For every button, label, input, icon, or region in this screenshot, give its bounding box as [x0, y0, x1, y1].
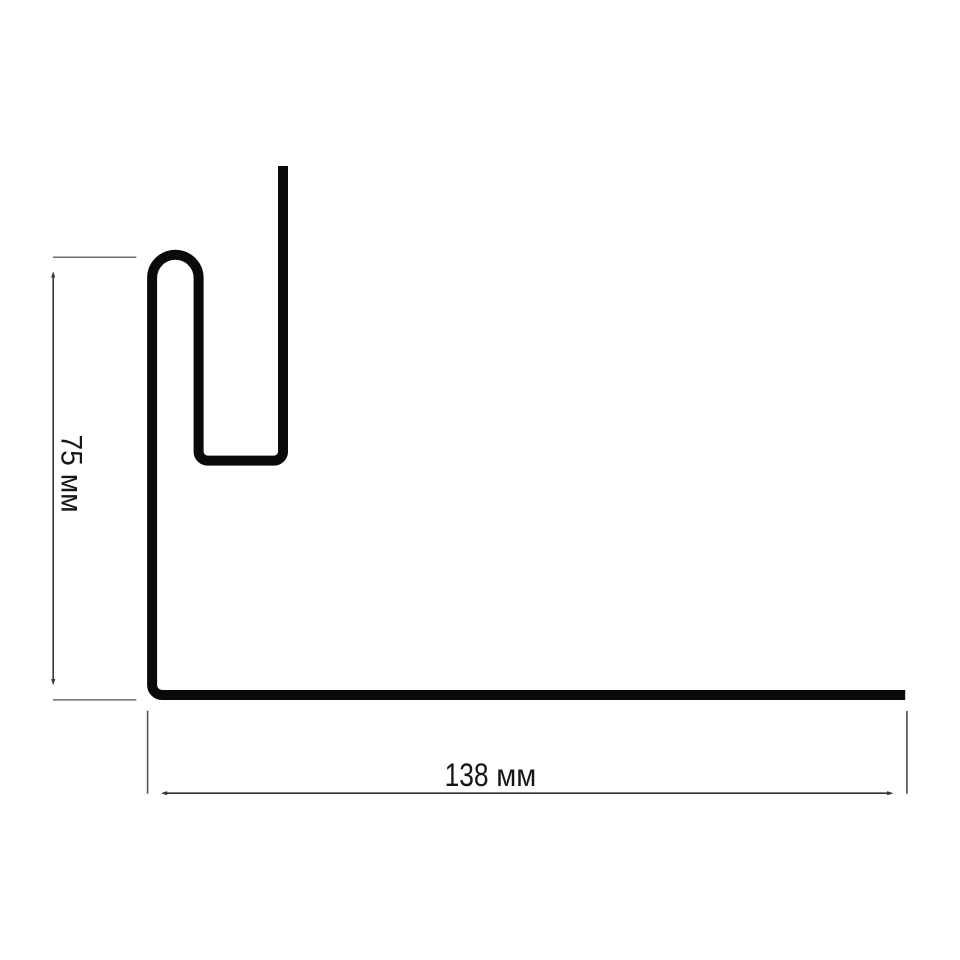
svg-text:75 мм: 75 мм	[54, 435, 87, 513]
svg-text:мм: мм	[496, 757, 536, 793]
svg-text:138: 138	[445, 757, 489, 793]
